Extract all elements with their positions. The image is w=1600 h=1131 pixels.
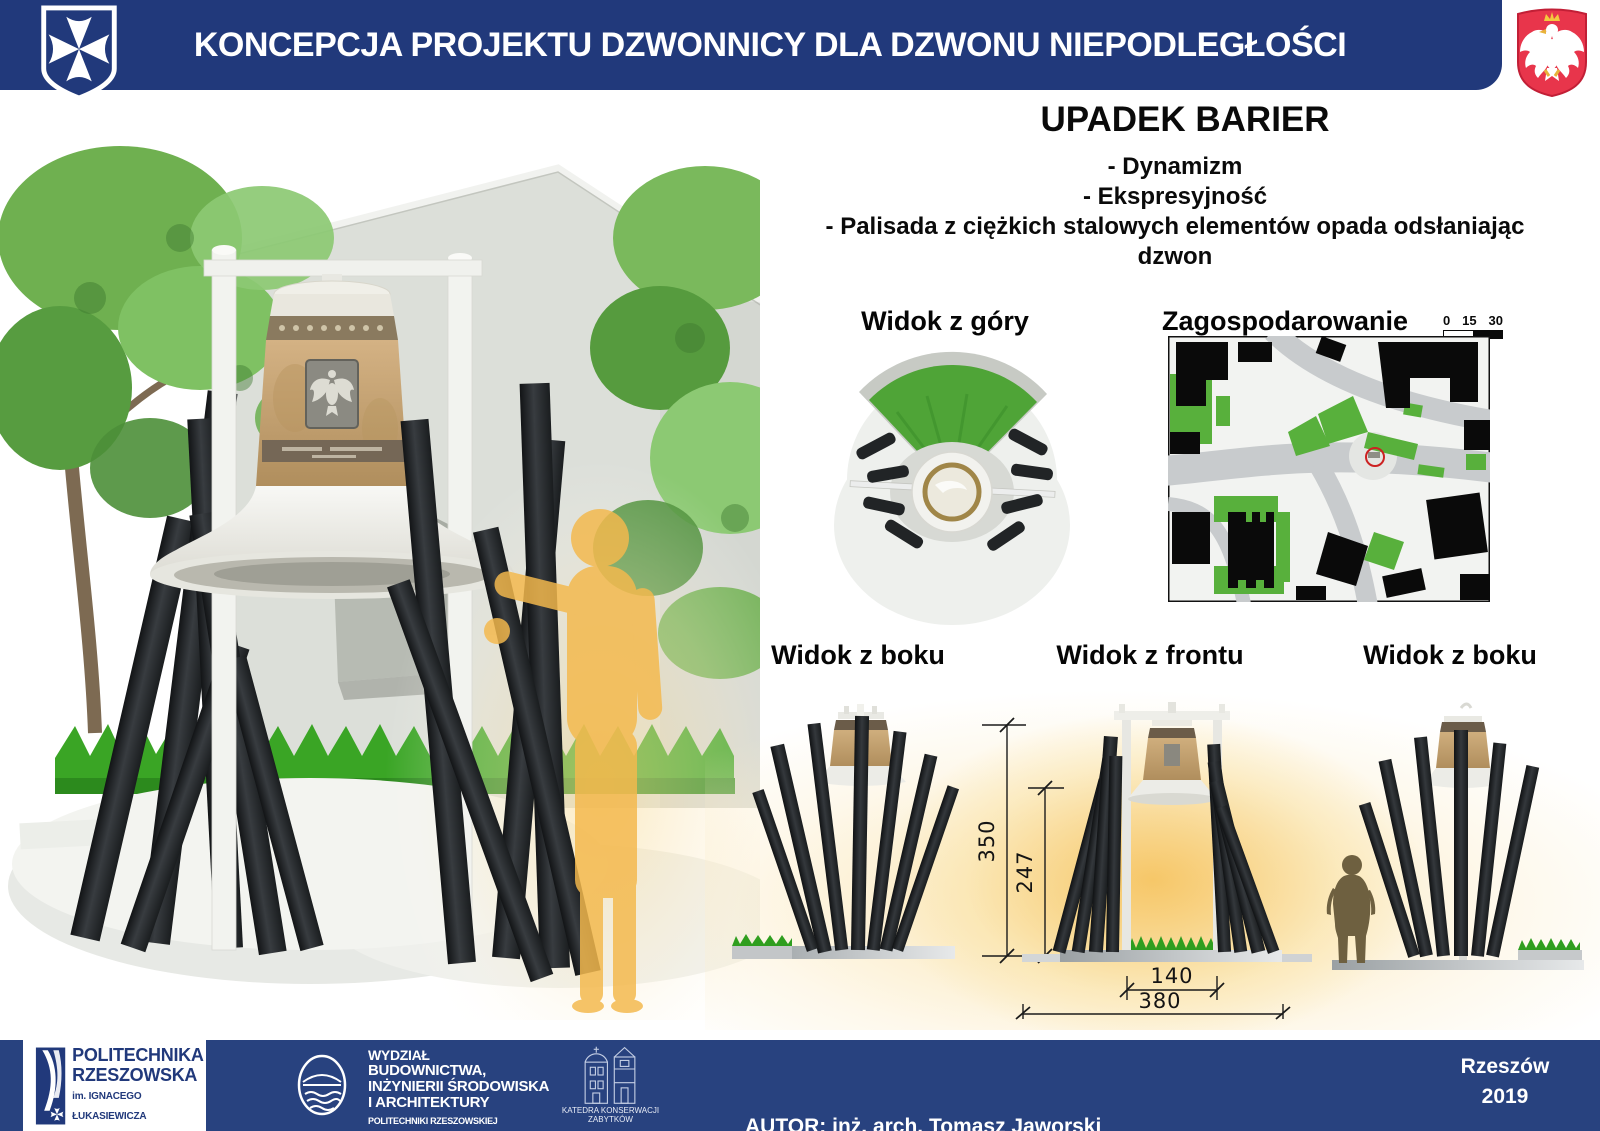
faculty-line-5: POLITECHNIKI RZESZOWSKIEJ <box>368 1113 549 1129</box>
main-render <box>0 88 760 1020</box>
bullet-dynamizm: - Dynamizm <box>815 152 1535 182</box>
site-plan-label: Zagospodarowanie <box>1160 306 1410 337</box>
department-caption: KATEDRA KONSERWACJI ZABYTKÓW <box>548 1106 673 1124</box>
top-view-label: Widok z góry <box>845 306 1045 337</box>
university-name-2: RZESZOWSKA <box>72 1065 206 1085</box>
concept-bullets: - Dynamizm - Ekspresyjność - Palisada z … <box>815 152 1535 272</box>
politechnika-rzeszowska-logo-icon <box>35 1043 66 1129</box>
place-year-block: Rzeszów 2019 <box>1440 1052 1570 1112</box>
svg-text:247: 247 <box>1013 850 1037 893</box>
bullet-palisada: - Palisada z ciężkich stalowych elementó… <box>815 212 1535 272</box>
scale-tick-0: 0 <box>1443 313 1450 328</box>
bullet-ekspresyjnosc: - Ekspresyjność <box>815 182 1535 212</box>
side-view-left-label: Widok z boku <box>758 640 958 671</box>
faculty-line-1: WYDZIAŁ <box>368 1047 549 1063</box>
dimension-overall-height: 350 <box>975 718 1026 963</box>
faculty-line-3: INŻYNIERII ŚRODOWISKA <box>368 1079 549 1095</box>
svg-text:140: 140 <box>1150 964 1193 988</box>
concept-title: UPADEK BARIER <box>785 100 1585 140</box>
faculty-name-block: WYDZIAŁ BUDOWNICTWA, INŻYNIERII ŚRODOWIS… <box>368 1047 549 1129</box>
front-view-drawing <box>1022 702 1312 962</box>
front-view-label: Widok z frontu <box>1050 640 1250 671</box>
site-plan-map <box>1168 336 1490 602</box>
faculty-bridge-logo-icon <box>296 1053 348 1117</box>
scale-person-silhouette <box>1327 855 1376 963</box>
side-view-left-drawing <box>732 704 959 959</box>
katedra-church-logo-icon <box>572 1045 648 1105</box>
svg-text:380: 380 <box>1138 989 1181 1013</box>
side-view-right-drawing <box>1327 704 1584 970</box>
faculty-line-2: BUDOWNICTWA, <box>368 1063 549 1079</box>
faculty-line-4: I ARCHITEKTURY <box>368 1095 549 1111</box>
top-view-render <box>815 340 1090 630</box>
university-name-3: im. IGNACEGO ŁUKASIEWICZA <box>72 1087 206 1127</box>
elevation-drawings: .dim{stroke:#1b1b1b;stroke-width:1.4;} .… <box>720 678 1600 1020</box>
department-line-1: KATEDRA KONSERWACJI <box>548 1106 673 1115</box>
university-panel: POLITECHNIKA RZESZOWSKA im. IGNACEGO ŁUK… <box>23 1040 206 1131</box>
department-line-2: ZABYTKÓW <box>548 1115 673 1124</box>
scale-tick-15: 15 <box>1462 313 1476 328</box>
poland-eagle-emblem-icon <box>1512 6 1592 98</box>
dimension-frame-height: 247 <box>982 781 1064 963</box>
year-label: 2019 <box>1440 1082 1570 1112</box>
poster-board: KONCEPCJA PROJEKTU DZWONNICY DLA DZWONU … <box>0 0 1600 1131</box>
side-view-right-label: Widok z boku <box>1350 640 1550 671</box>
dimension-base-width: 380 <box>1016 989 1290 1019</box>
university-name-1: POLITECHNIKA <box>72 1045 206 1065</box>
author-line: AUTOR: inż. arch. Tomasz Jaworski <box>745 1112 1256 1131</box>
svg-text:350: 350 <box>975 819 999 862</box>
credits-block: AUTOR: inż. arch. Tomasz Jaworski PROMOT… <box>745 1052 1256 1131</box>
city-label: Rzeszów <box>1440 1052 1570 1082</box>
footer-bar: POLITECHNIKA RZESZOWSKA im. IGNACEGO ŁUK… <box>0 1040 1600 1131</box>
page-title: KONCEPCJA PROJEKTU DZWONNICY DLA DZWONU … <box>140 0 1400 90</box>
scale-tick-30: 30 <box>1489 313 1503 328</box>
